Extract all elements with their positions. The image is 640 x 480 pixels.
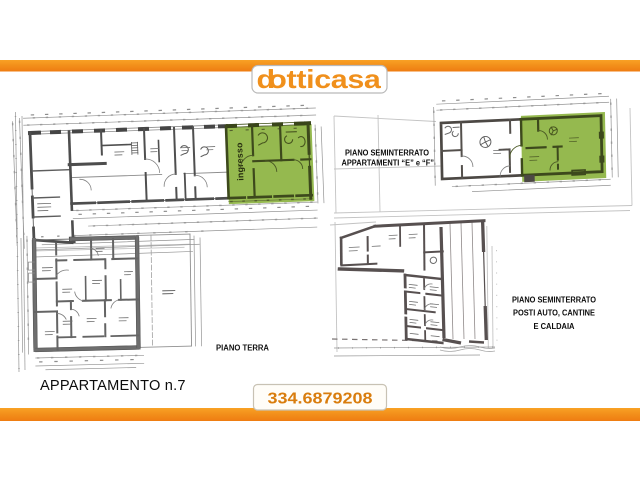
svg-text:APPARTAMENTO n.7: APPARTAMENTO n.7: [40, 378, 186, 394]
svg-text:ingresso: ingresso: [234, 142, 245, 181]
svg-text:POSTI AUTO, CANTINE: POSTI AUTO, CANTINE: [513, 307, 595, 317]
svg-text:PIANO TERRA: PIANO TERRA: [216, 343, 269, 353]
svg-text:APPARTAMENTI “E” e “F”: APPARTAMENTI “E” e “F”: [342, 157, 435, 167]
svg-text:E CALDAIA: E CALDAIA: [534, 321, 576, 331]
svg-text:dotticasa: dotticasa: [257, 64, 382, 94]
svg-text:334.6879208: 334.6879208: [268, 391, 373, 408]
svg-text:PIANO SEMINTERRATO: PIANO SEMINTERRATO: [512, 294, 596, 304]
svg-text:PIANO SEMINTERRATO: PIANO SEMINTERRATO: [345, 147, 429, 157]
